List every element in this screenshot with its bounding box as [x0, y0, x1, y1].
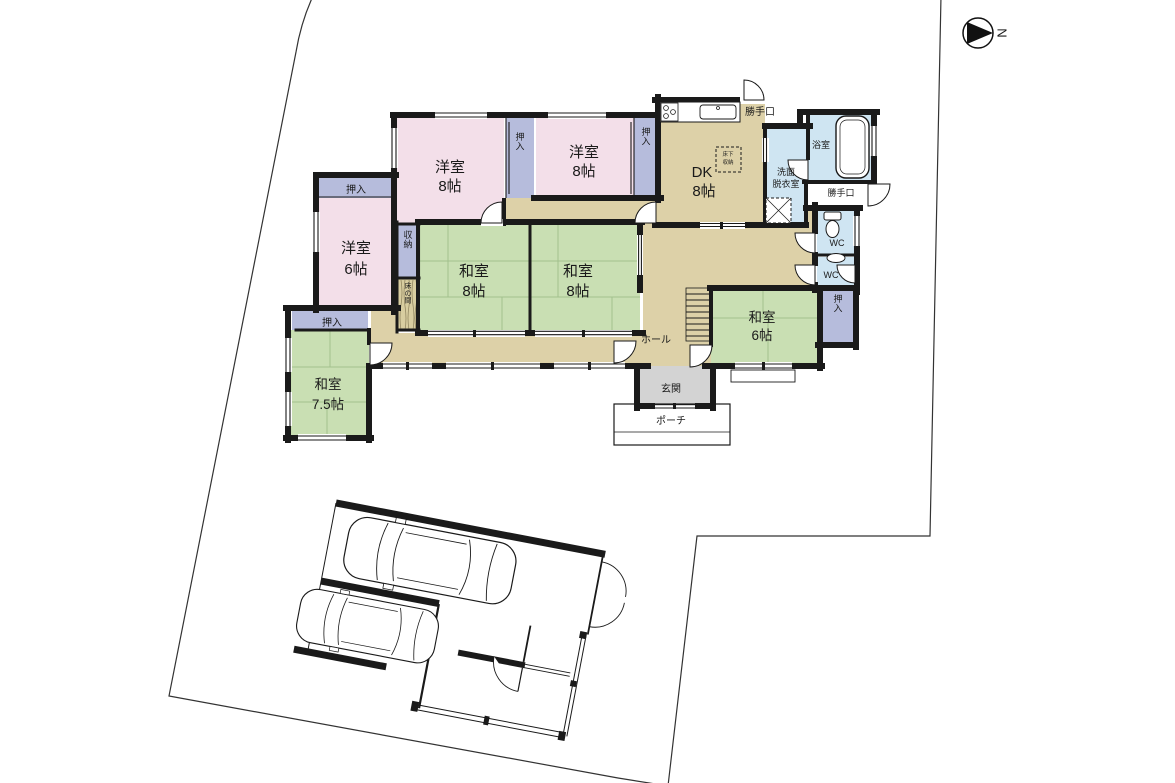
- label-yoshitsu8b-1: 洋室: [569, 144, 599, 161]
- engawa-step: [731, 370, 795, 382]
- label-washitsu8b-2: 8帖: [566, 283, 589, 300]
- label-dk-1: DK: [692, 164, 713, 181]
- label-washitsu6-1: 和室: [749, 309, 776, 325]
- toilet-icon: [824, 212, 841, 238]
- label-oshiire-b: 押入: [641, 126, 650, 146]
- label-yoshitsu8a-1: 洋室: [435, 159, 465, 176]
- label-oshiire-w75: 押入: [322, 316, 342, 329]
- compass-needle-icon: [967, 22, 993, 44]
- label-oshiire-a: 押入: [515, 131, 524, 151]
- label-genkan: 玄関: [661, 382, 681, 395]
- room-washitsu6: [711, 288, 820, 366]
- label-oshiire-w6: 押入: [833, 293, 842, 313]
- label-washitsu6-2: 6帖: [751, 328, 772, 343]
- label-bath: 浴室: [812, 139, 830, 150]
- corridor-bottom: [371, 333, 643, 366]
- label-washitsu75-2: 7.5帖: [312, 397, 344, 412]
- label-porch: ポーチ: [656, 415, 686, 427]
- compass: N: [963, 18, 1010, 48]
- label-yoshitsu8b-2: 8帖: [572, 163, 595, 180]
- car-1: [340, 509, 520, 612]
- label-yoshitsu8a-2: 8帖: [438, 178, 461, 195]
- label-oshiire-y6: 押入: [346, 183, 366, 196]
- sink-oval-icon: [827, 254, 845, 263]
- label-wc1: WC: [830, 238, 845, 248]
- floor-plan-svg: N: [0, 0, 1175, 783]
- label-yukashita-2: 収納: [722, 158, 734, 166]
- hall-upper: [643, 225, 815, 288]
- label-yoshitsu6-2: 6帖: [344, 261, 367, 278]
- label-washitsu8b-1: 和室: [563, 263, 593, 280]
- garage-structure: [284, 497, 633, 748]
- label-washitsu8a-2: 8帖: [462, 283, 485, 300]
- label-wc2: WC: [824, 270, 839, 280]
- floor-plan-page: N: [0, 0, 1175, 783]
- label-yukashita-1: 床下: [722, 150, 734, 158]
- washer-pan-icon: [766, 198, 791, 223]
- label-washitsu75-1: 和室: [315, 376, 342, 392]
- closet-oshiire-a: [506, 118, 534, 198]
- label-shuno: 収納: [403, 229, 412, 249]
- label-tokonoma: 床の間: [405, 281, 412, 305]
- bathtub-icon: [836, 116, 869, 178]
- sink-icon: [700, 105, 736, 119]
- label-yoshitsu6-1: 洋室: [341, 240, 371, 257]
- label-dk-2: 8帖: [692, 183, 715, 200]
- label-senmen-1: 洗面: [777, 166, 795, 177]
- compass-north-label: N: [995, 28, 1010, 37]
- label-hall: ホール: [641, 334, 671, 346]
- label-senmen-2: 脱衣室: [772, 178, 799, 189]
- kitchen-counter: [660, 102, 740, 122]
- label-katteguchi-top: 勝手口: [745, 105, 775, 118]
- label-washitsu8a-1: 和室: [459, 263, 489, 280]
- label-katteguchi-side: 勝手口: [827, 187, 854, 198]
